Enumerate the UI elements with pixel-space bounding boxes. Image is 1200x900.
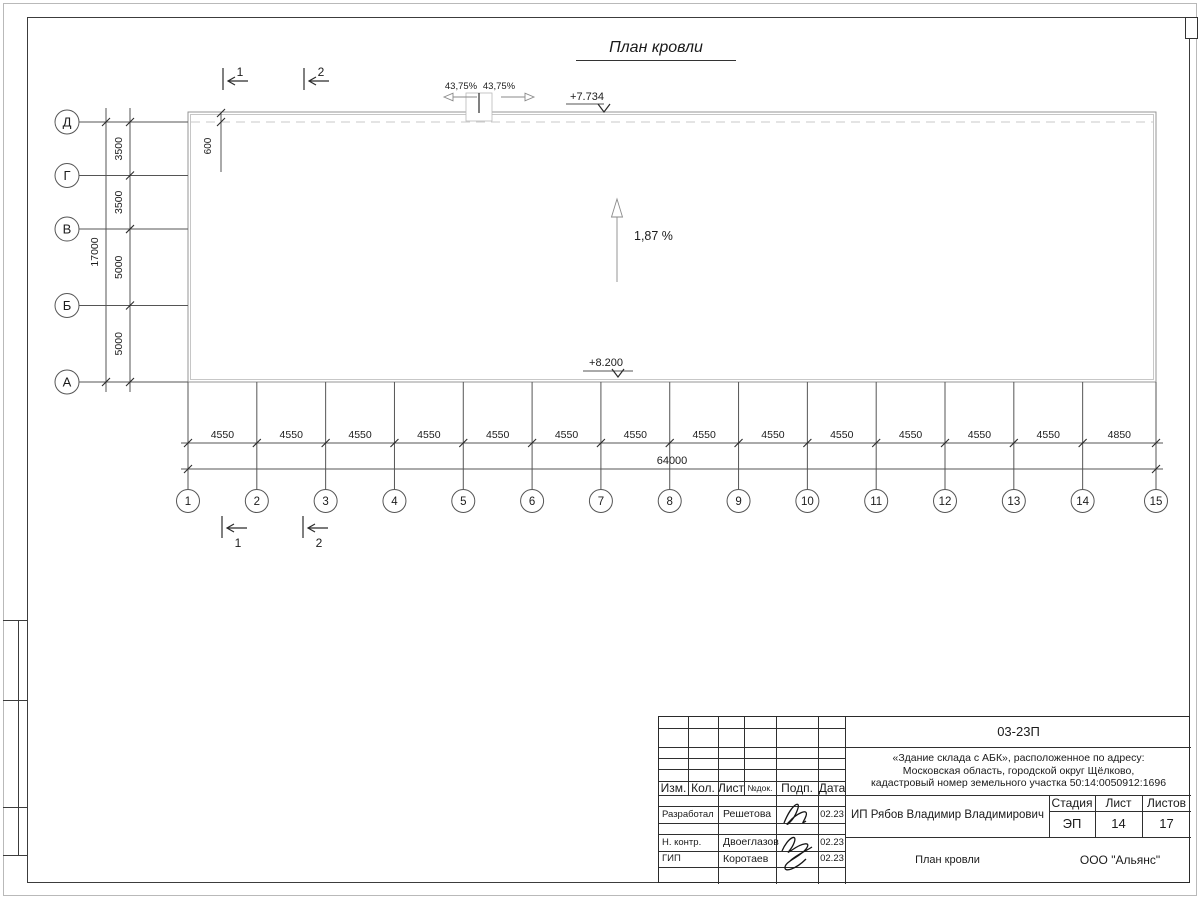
dimension-label: 4550 (968, 429, 992, 441)
ridge-slope-label: 43,75% (445, 81, 478, 92)
title-block-line (659, 795, 846, 796)
column-axis-number: 7 (598, 496, 604, 508)
dimension-label: 4550 (417, 429, 441, 441)
organization: ООО "Альянс" (1049, 837, 1191, 884)
ridge-arrowhead-right (525, 93, 534, 101)
signature-scribble (784, 804, 806, 824)
signature-name: Двоеглазов (720, 834, 776, 851)
title-block-line (718, 717, 719, 884)
sheet-label: Лист (1095, 795, 1142, 811)
row-axis-letter: Б (63, 298, 72, 313)
title-block-header-izm: Изм. (659, 781, 688, 795)
title-block-header-kol: Кол. (688, 781, 718, 795)
title-block: Изм. Кол. Лист №док. Подп. Дата Разработ… (658, 716, 1190, 883)
column-axis-number: 5 (460, 496, 466, 508)
project-line: кадастровый номер земельного участка 50:… (871, 777, 1166, 789)
dimension-label: 5000 (113, 332, 125, 356)
title-block-header-list: Лист (718, 781, 744, 795)
elevation-arrow (612, 369, 624, 377)
elevation-arrow (598, 104, 610, 112)
left-table-line (3, 807, 27, 808)
stage-value: ЭП (1049, 811, 1095, 837)
left-table-line (3, 855, 27, 856)
dimension-label: 3500 (113, 137, 125, 161)
drawing-sheet: План кровли 43,75%43,75%ДГВБА35003500500… (0, 0, 1200, 900)
left-table-line (18, 620, 19, 856)
dimension-label: 600 (203, 137, 214, 154)
sheet-value: 14 (1095, 811, 1142, 837)
column-axis-number: 9 (735, 496, 741, 508)
column-axis-number: 1 (185, 496, 191, 508)
dimension-label: 4550 (486, 429, 510, 441)
slope-arrowhead (612, 199, 623, 217)
project-description: «Здание склада с АБК», расположенное по … (846, 747, 1191, 795)
row-axis-letter: В (63, 222, 72, 237)
signature-name: Решетова (720, 806, 776, 823)
row-axis-letter: А (63, 375, 72, 390)
doc-number: 03-23П (846, 717, 1191, 747)
signature-date: 02.23 (818, 851, 846, 867)
dimension-label: 4550 (280, 429, 304, 441)
dimension-label: 4550 (348, 429, 372, 441)
signature-role: Н. контр. (659, 834, 718, 851)
signature-date: 02.23 (818, 806, 846, 823)
column-axis-number: 3 (322, 496, 328, 508)
title-block-header-podp: Подп. (776, 781, 818, 795)
signature-role: ГИП (659, 851, 718, 867)
sheets-value: 17 (1142, 811, 1191, 837)
column-axis-number: 11 (870, 496, 882, 508)
stage-label: Стадия (1049, 795, 1095, 811)
row-axis-letter: Г (63, 168, 70, 183)
dimension-label: 4550 (555, 429, 579, 441)
row-axis-letter: Д (63, 115, 72, 130)
section-mark-label: 1 (237, 65, 244, 79)
title-block-line (659, 747, 846, 748)
dimension-label: 5000 (113, 255, 125, 279)
dimension-label: 4550 (692, 429, 716, 441)
section-mark-label: 2 (316, 536, 323, 550)
elevation-label: +8.200 (589, 357, 623, 369)
column-axis-number: 2 (254, 496, 260, 508)
title-block-header-ndok: №док. (744, 781, 776, 795)
dimension-total-label: 17000 (89, 237, 101, 266)
signature-date: 02.23 (818, 834, 846, 851)
dimension-label: 4850 (1108, 429, 1132, 441)
column-axis-number: 14 (1076, 496, 1089, 508)
sheets-label: Листов (1142, 795, 1191, 811)
title-block-header-data: Дата (818, 781, 846, 795)
dimension-label: 4550 (624, 429, 648, 441)
dimension-label: 4550 (761, 429, 785, 441)
client-name: ИП Рябов Владимир Владимирович (846, 795, 1049, 837)
column-axis-number: 6 (529, 496, 535, 508)
signature-scribbles (776, 797, 818, 871)
section-mark-label: 2 (318, 65, 325, 79)
slope-label: 1,87 % (634, 229, 673, 243)
dimension-label: 4550 (211, 429, 235, 441)
title-block-line (659, 728, 846, 729)
dimension-label: 4550 (899, 429, 923, 441)
column-axis-number: 4 (391, 496, 398, 508)
dimension-total-label: 64000 (657, 455, 688, 467)
dimension-label: 3500 (113, 190, 125, 214)
sheet-name: План кровли (846, 837, 1049, 884)
column-axis-number: 13 (1007, 496, 1020, 508)
column-axis-number: 15 (1150, 496, 1163, 508)
dimension-label: 4550 (1037, 429, 1061, 441)
column-axis-number: 8 (667, 496, 673, 508)
left-table-line (3, 620, 27, 621)
signature-name: Коротаев (720, 851, 776, 867)
left-table-line (3, 700, 27, 701)
ridge-slope-label: 43,75% (483, 81, 516, 92)
roof-outline (188, 112, 1156, 382)
title-block-line (659, 758, 846, 759)
elevation-label: +7.734 (570, 91, 604, 103)
project-line: «Здание склада с АБК», расположенное по … (893, 752, 1145, 764)
section-mark-label: 1 (235, 536, 242, 550)
project-line: Московская область, городской округ Щёлк… (903, 765, 1135, 777)
title-block-line (659, 769, 846, 770)
ridge-arrowhead-left (444, 93, 453, 101)
column-axis-number: 12 (939, 496, 952, 508)
signature-role: Разработал (659, 806, 718, 823)
dimension-label: 4550 (830, 429, 854, 441)
signature-scribble (782, 837, 812, 869)
column-axis-number: 10 (801, 496, 814, 508)
roof-outline-inner (191, 115, 1154, 380)
